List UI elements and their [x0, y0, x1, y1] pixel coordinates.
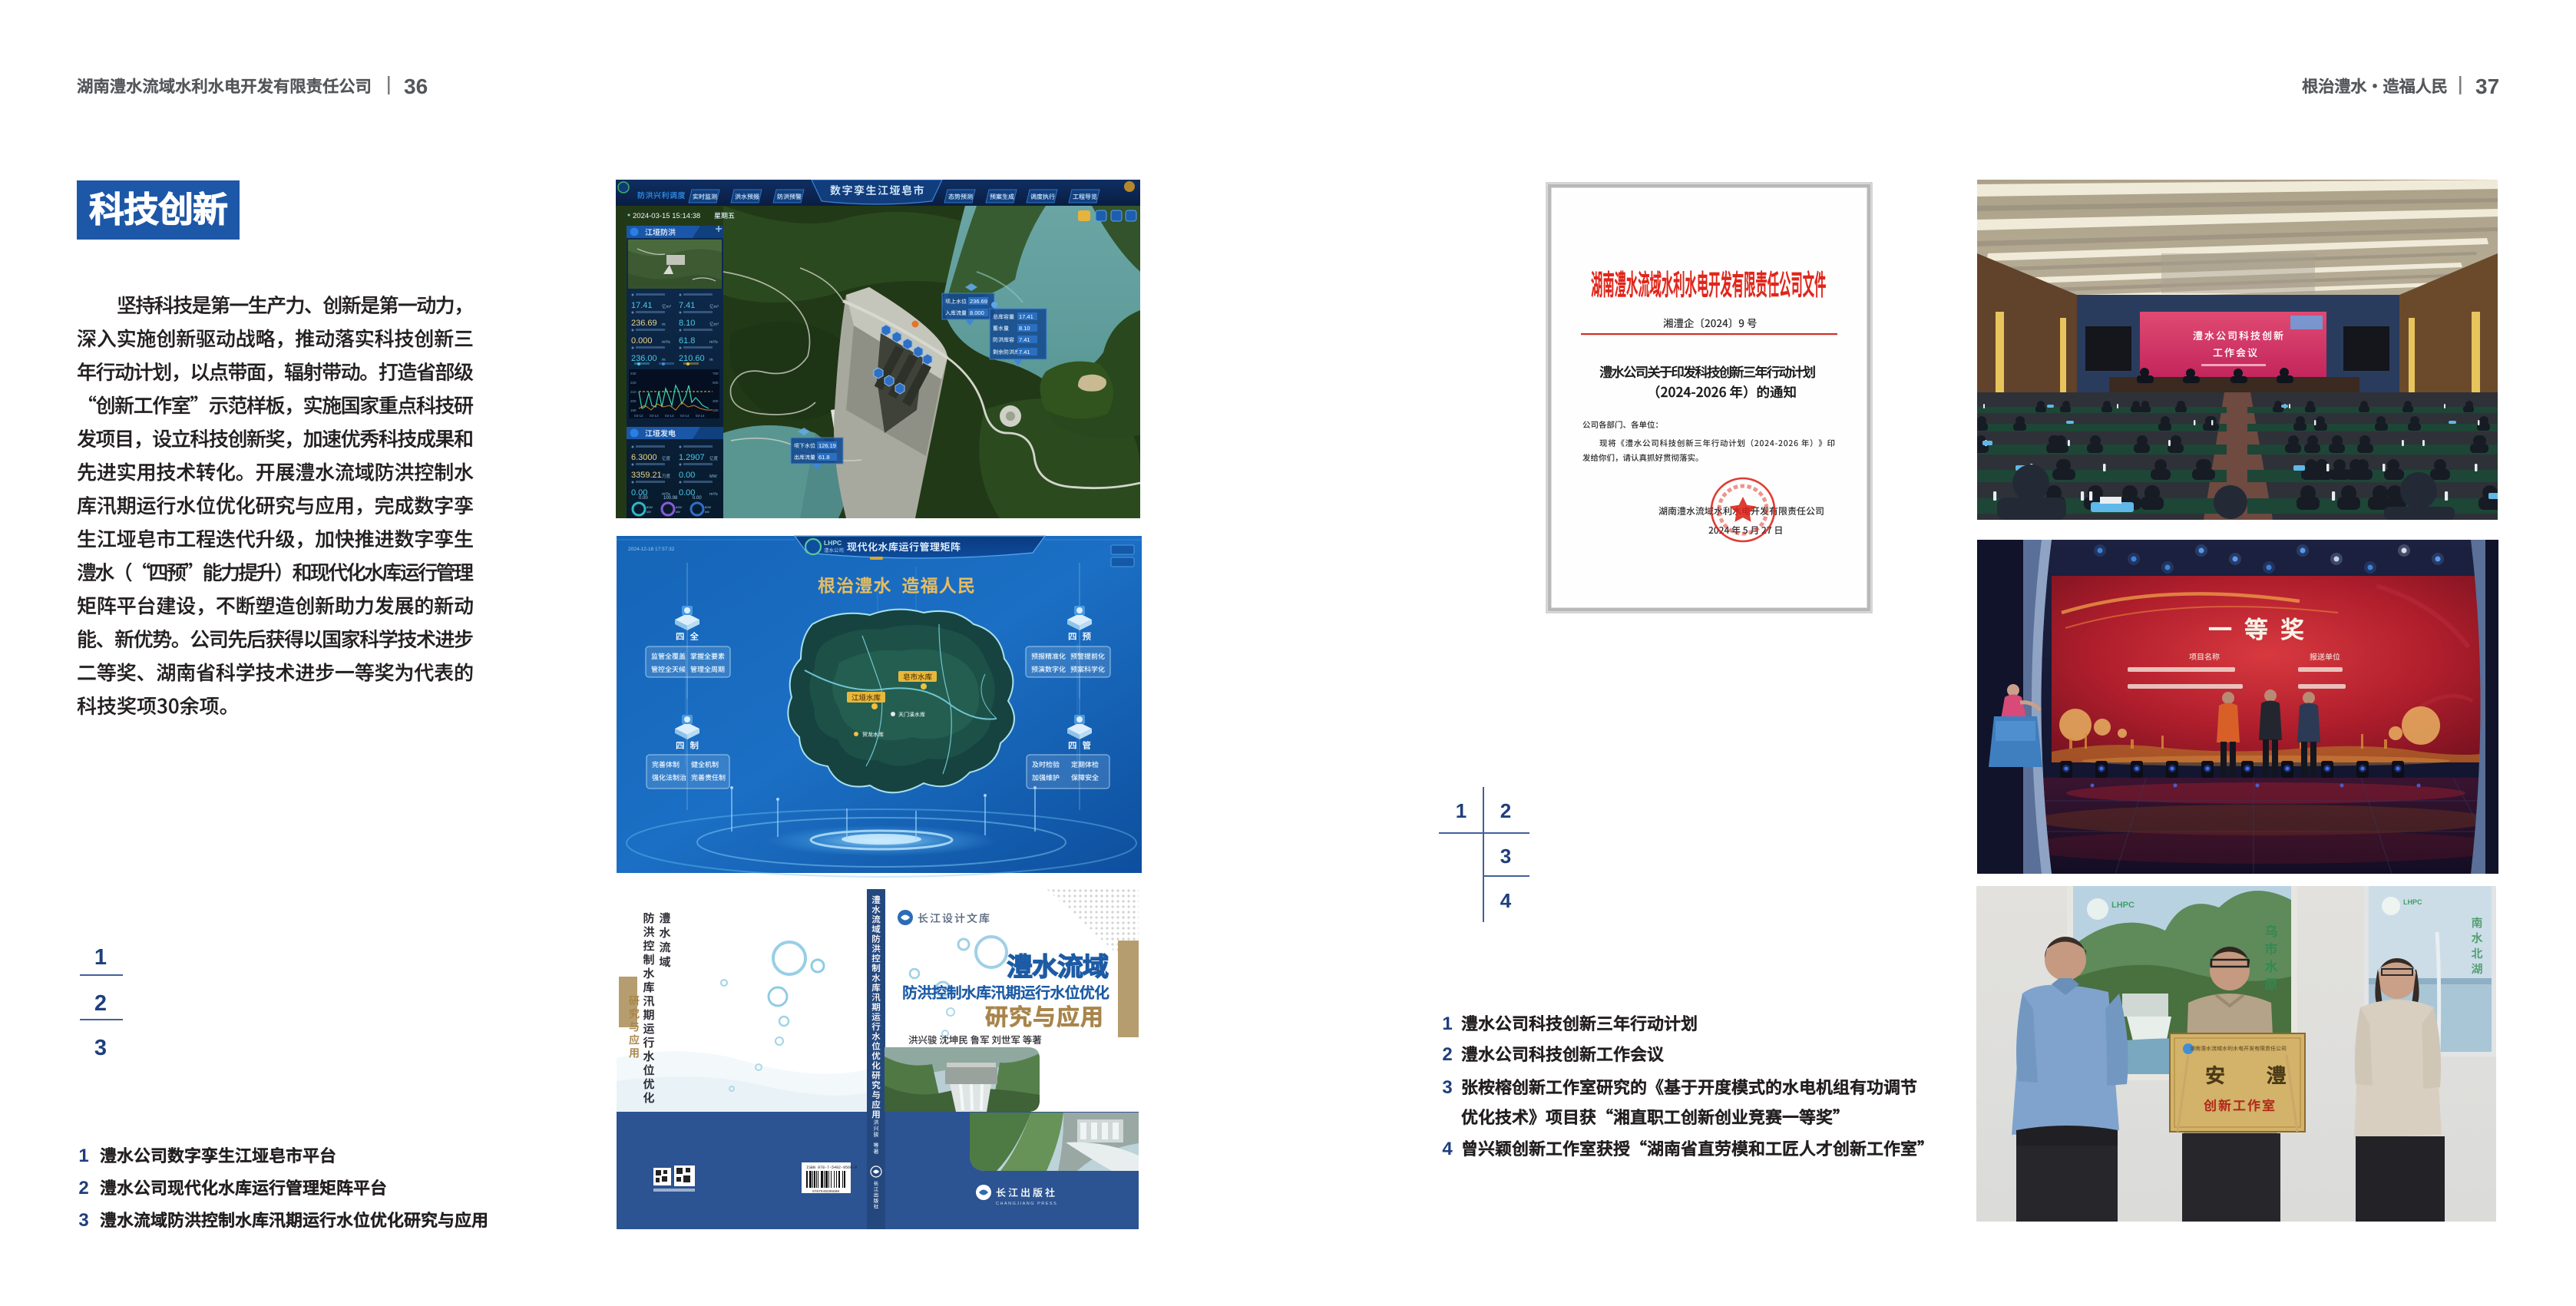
svg-text:CHANGJIANG PRESS: CHANGJIANG PRESS [996, 1202, 1057, 1206]
svg-text:300: 300 [713, 399, 719, 403]
svg-text:kW: kW [676, 510, 680, 514]
svg-text:LHPC: LHPC [2111, 901, 2135, 910]
svg-text:2: 2 [94, 991, 107, 1016]
svg-text:03-12: 03-12 [634, 414, 643, 418]
svg-text:1.2907: 1.2907 [679, 453, 705, 462]
svg-text:4: 4 [1500, 889, 1512, 912]
svg-text:03-14: 03-14 [696, 414, 705, 418]
svg-text:236.00: 236.00 [631, 354, 657, 363]
svg-text:61.8: 61.8 [818, 454, 830, 461]
svg-text:4: 4 [1442, 1139, 1453, 1159]
svg-text:36: 36 [404, 74, 428, 98]
svg-text:03-13: 03-13 [650, 414, 659, 418]
svg-text:亿m³: 亿m³ [709, 321, 719, 327]
svg-text:700: 700 [713, 372, 719, 375]
svg-text:100: 100 [713, 408, 719, 412]
svg-text:2024-03-15 15:14:38: 2024-03-15 15:14:38 [633, 212, 700, 220]
svg-text:7.41: 7.41 [679, 301, 695, 310]
svg-text:03-14: 03-14 [680, 414, 689, 418]
svg-text:220: 220 [630, 381, 637, 385]
svg-text:500: 500 [713, 381, 719, 385]
svg-text:LHPC: LHPC [824, 539, 842, 547]
svg-text:MW: MW [709, 474, 718, 479]
svg-text:2: 2 [1442, 1044, 1452, 1065]
svg-text:6.3000: 6.3000 [631, 453, 657, 462]
svg-text:3: 3 [1500, 845, 1511, 868]
svg-text:1: 1 [1456, 799, 1467, 822]
svg-text:17.41: 17.41 [1019, 313, 1033, 320]
svg-text:9787549295609: 9787549295609 [812, 1189, 839, 1194]
svg-text:2: 2 [1500, 799, 1511, 822]
svg-text:3: 3 [78, 1210, 88, 1231]
svg-text:3359.21: 3359.21 [631, 471, 662, 480]
svg-text:236.69: 236.69 [970, 298, 987, 305]
svg-text:230: 230 [630, 372, 637, 375]
svg-text:62M: 62M [646, 505, 653, 509]
svg-text:17.41: 17.41 [631, 301, 653, 310]
svg-text:03-13: 03-13 [665, 414, 674, 418]
svg-text:37: 37 [2475, 74, 2499, 98]
svg-text:200: 200 [630, 399, 637, 403]
svg-text:2: 2 [78, 1178, 88, 1199]
svg-text:210.60: 210.60 [679, 354, 705, 363]
svg-text:8.10: 8.10 [1019, 325, 1030, 332]
svg-text:61.8: 61.8 [679, 336, 695, 346]
svg-text:3: 3 [94, 1036, 107, 1060]
svg-text:m: m [662, 358, 666, 362]
svg-text:亿度: 亿度 [662, 455, 671, 461]
svg-text:ISBN 978-7-5492-9560-9: ISBN 978-7-5492-9560-9 [806, 1165, 857, 1170]
svg-text:7.41: 7.41 [1019, 349, 1030, 355]
svg-text:1: 1 [1442, 1013, 1452, 1034]
svg-text:kW: kW [646, 510, 651, 514]
svg-text:8.000: 8.000 [970, 309, 984, 316]
svg-text:m³/s: m³/s [662, 340, 670, 345]
svg-text:3: 3 [1442, 1077, 1452, 1098]
svg-text:0.00: 0.00 [679, 471, 695, 480]
svg-text:kW: kW [705, 510, 709, 514]
svg-text:62M: 62M [676, 505, 682, 509]
svg-text:m: m [662, 322, 666, 327]
svg-text:2024-12-18 17:57:32: 2024-12-18 17:57:32 [628, 547, 675, 552]
svg-text:62M: 62M [705, 505, 711, 509]
svg-text:m³/s: m³/s [709, 340, 718, 345]
svg-text:m: m [709, 358, 713, 362]
svg-text:1: 1 [78, 1146, 88, 1166]
svg-text:236.69: 236.69 [631, 319, 657, 328]
svg-text:8.10: 8.10 [679, 319, 695, 328]
svg-text:LHPC: LHPC [2403, 898, 2422, 906]
svg-text:0.00: 0.00 [693, 496, 702, 501]
svg-text:0.000: 0.000 [631, 336, 653, 346]
svg-text:190: 190 [630, 408, 637, 412]
svg-text:100.98: 100.98 [663, 496, 678, 501]
svg-text:亿m³: 亿m³ [662, 303, 671, 309]
svg-text:亿度: 亿度 [709, 455, 719, 461]
svg-text:7.41: 7.41 [1019, 336, 1030, 343]
svg-text:0.00: 0.00 [639, 496, 648, 501]
svg-text:1: 1 [94, 945, 107, 970]
svg-text:亿m³: 亿m³ [709, 303, 719, 309]
svg-text:126.19: 126.19 [818, 442, 836, 449]
svg-text:210: 210 [630, 390, 637, 394]
svg-text:万度: 万度 [662, 473, 671, 479]
svg-text:m³/s: m³/s [709, 492, 718, 497]
